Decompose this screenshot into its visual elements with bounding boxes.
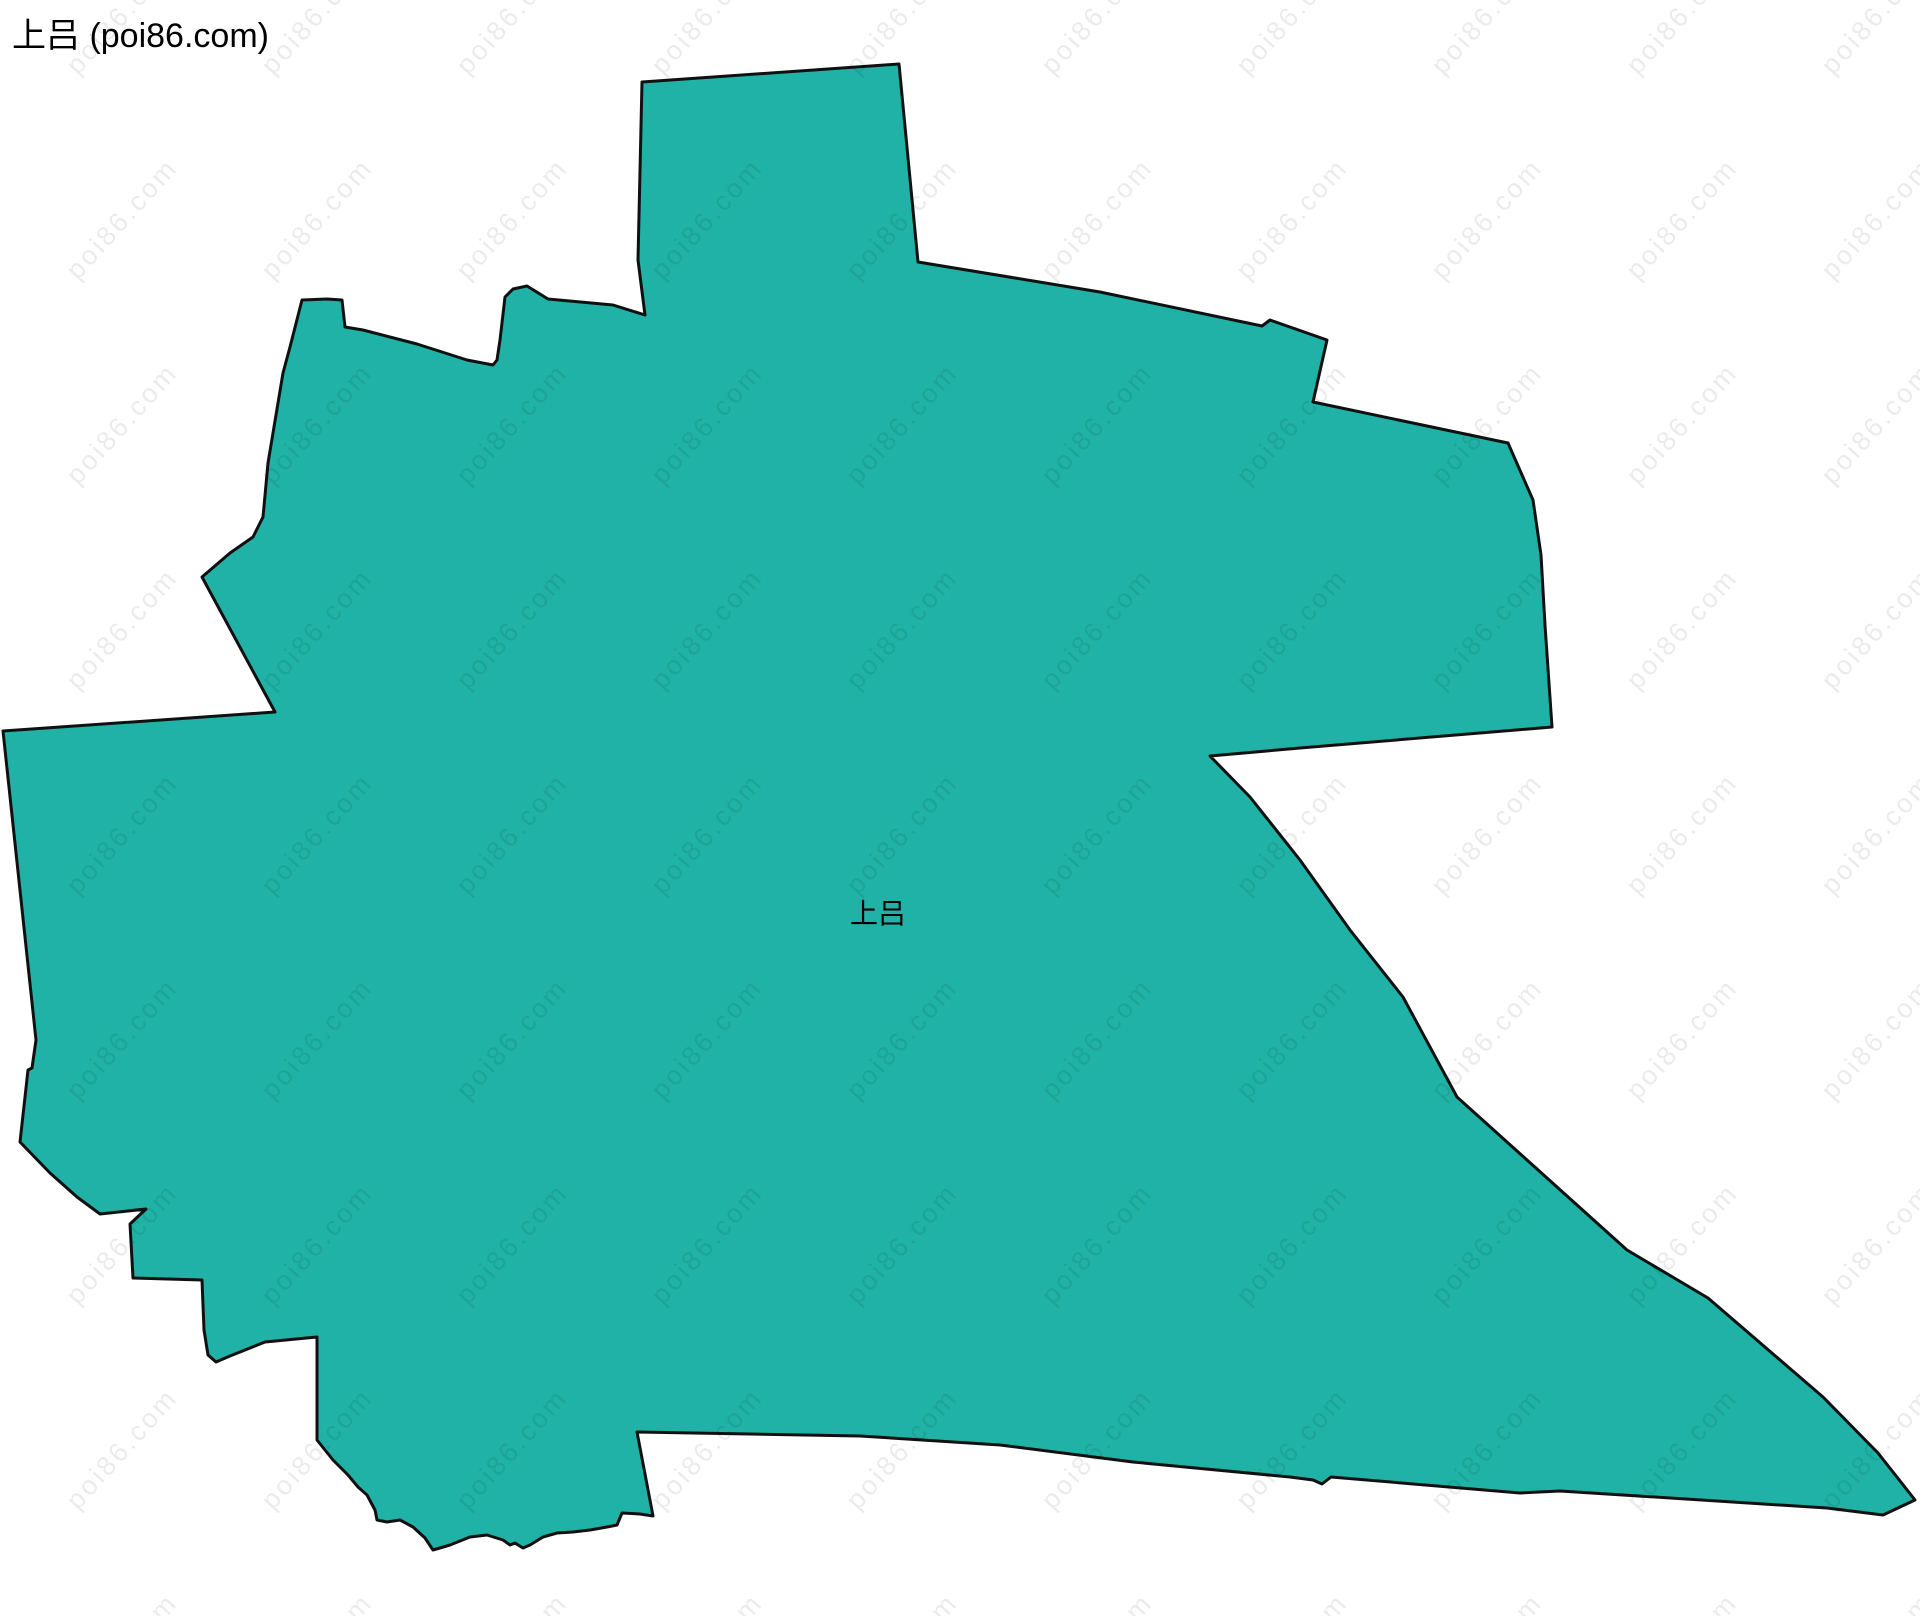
- page-title: 上吕 (poi86.com): [12, 8, 269, 57]
- region-polygon: [3, 64, 1915, 1550]
- boundary-map: [0, 0, 1920, 1616]
- region-label: 上吕: [850, 892, 906, 932]
- map-page: poi86.compoi86.compoi86.compoi86.compoi8…: [0, 0, 1920, 1616]
